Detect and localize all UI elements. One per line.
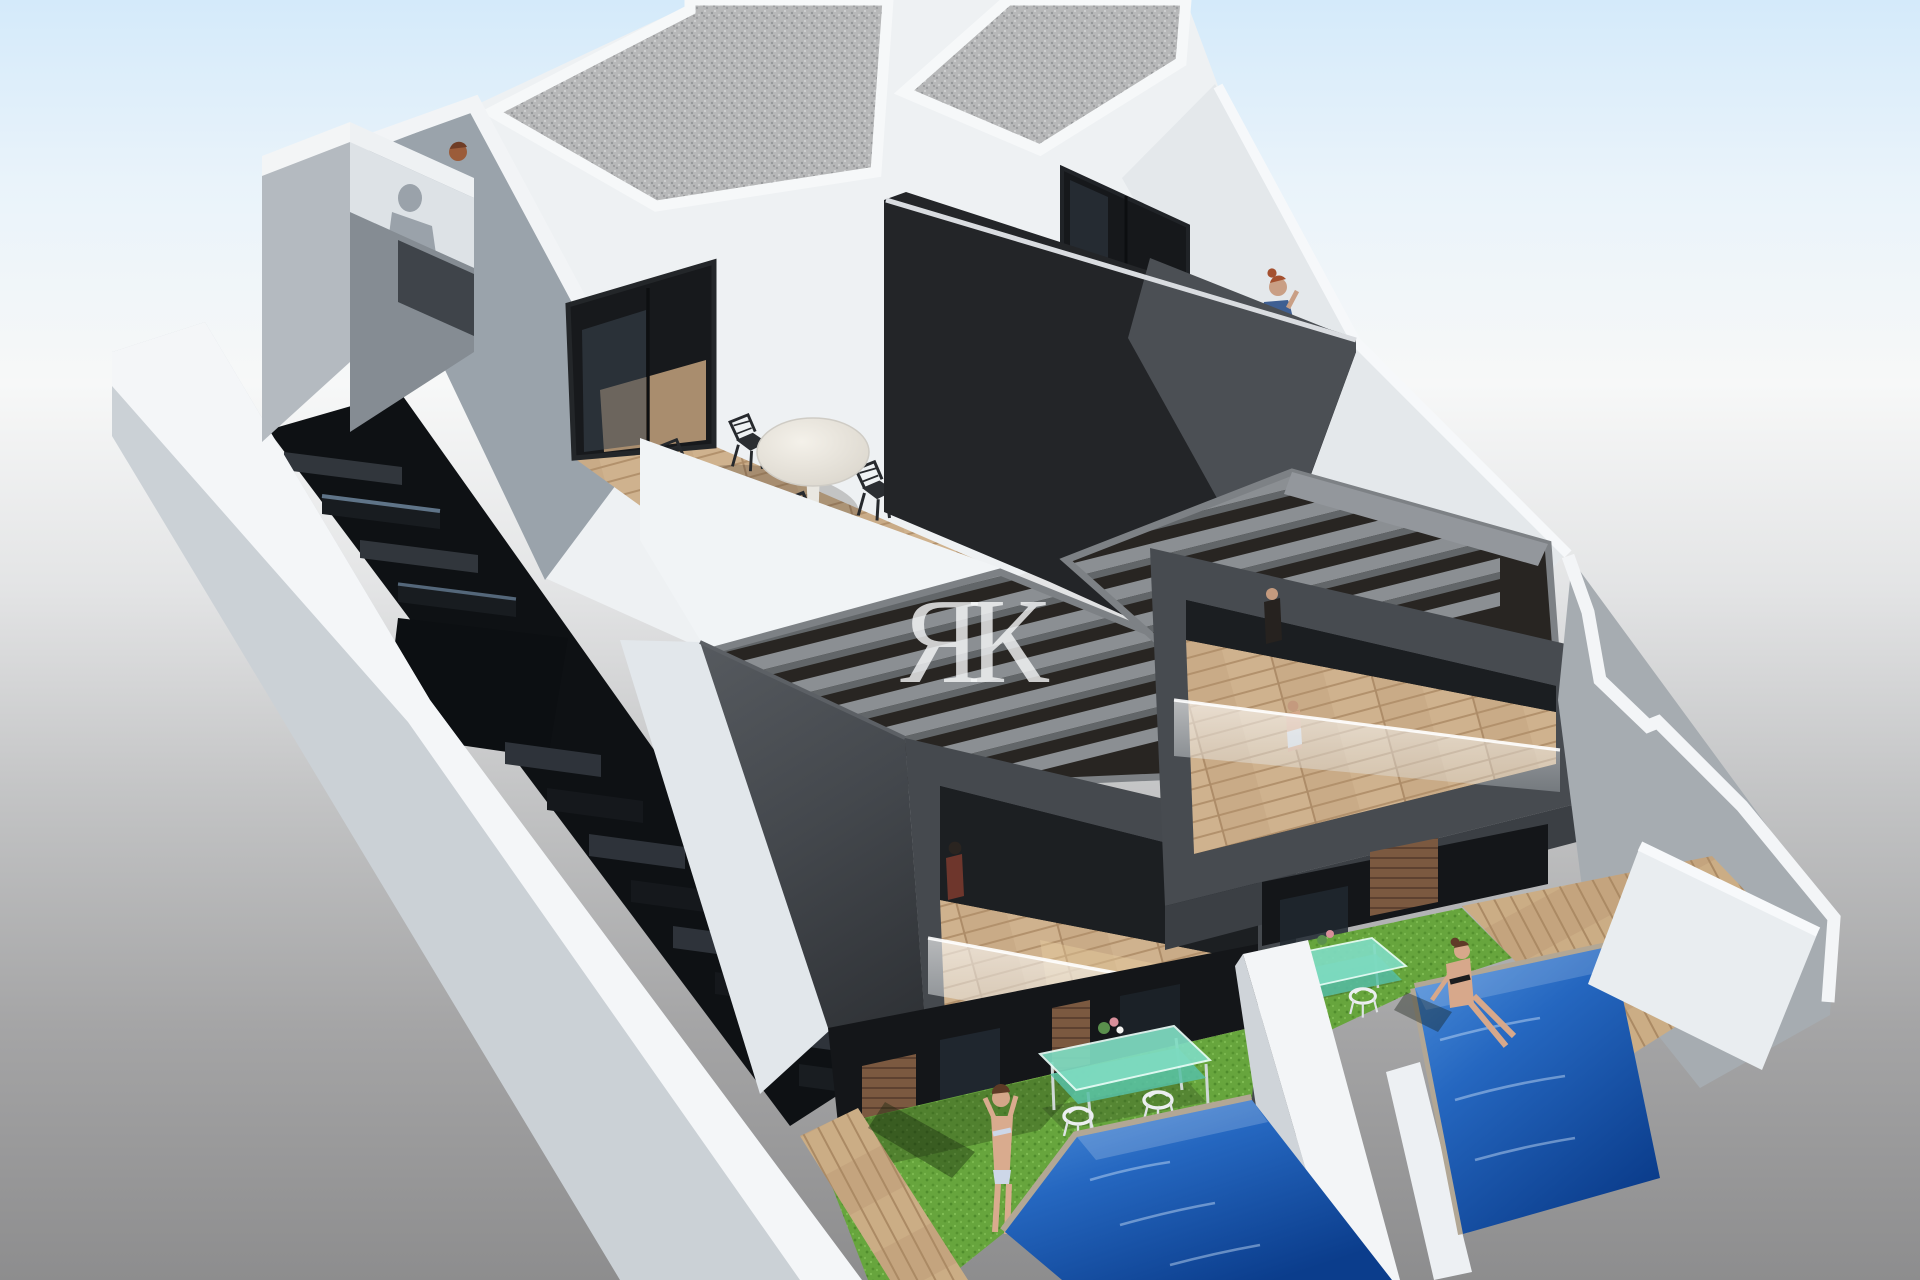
architectural-render: ЯК (0, 0, 1920, 1280)
watermark: ЯК (900, 574, 1049, 709)
render-canvas: ЯК (0, 0, 1920, 1280)
